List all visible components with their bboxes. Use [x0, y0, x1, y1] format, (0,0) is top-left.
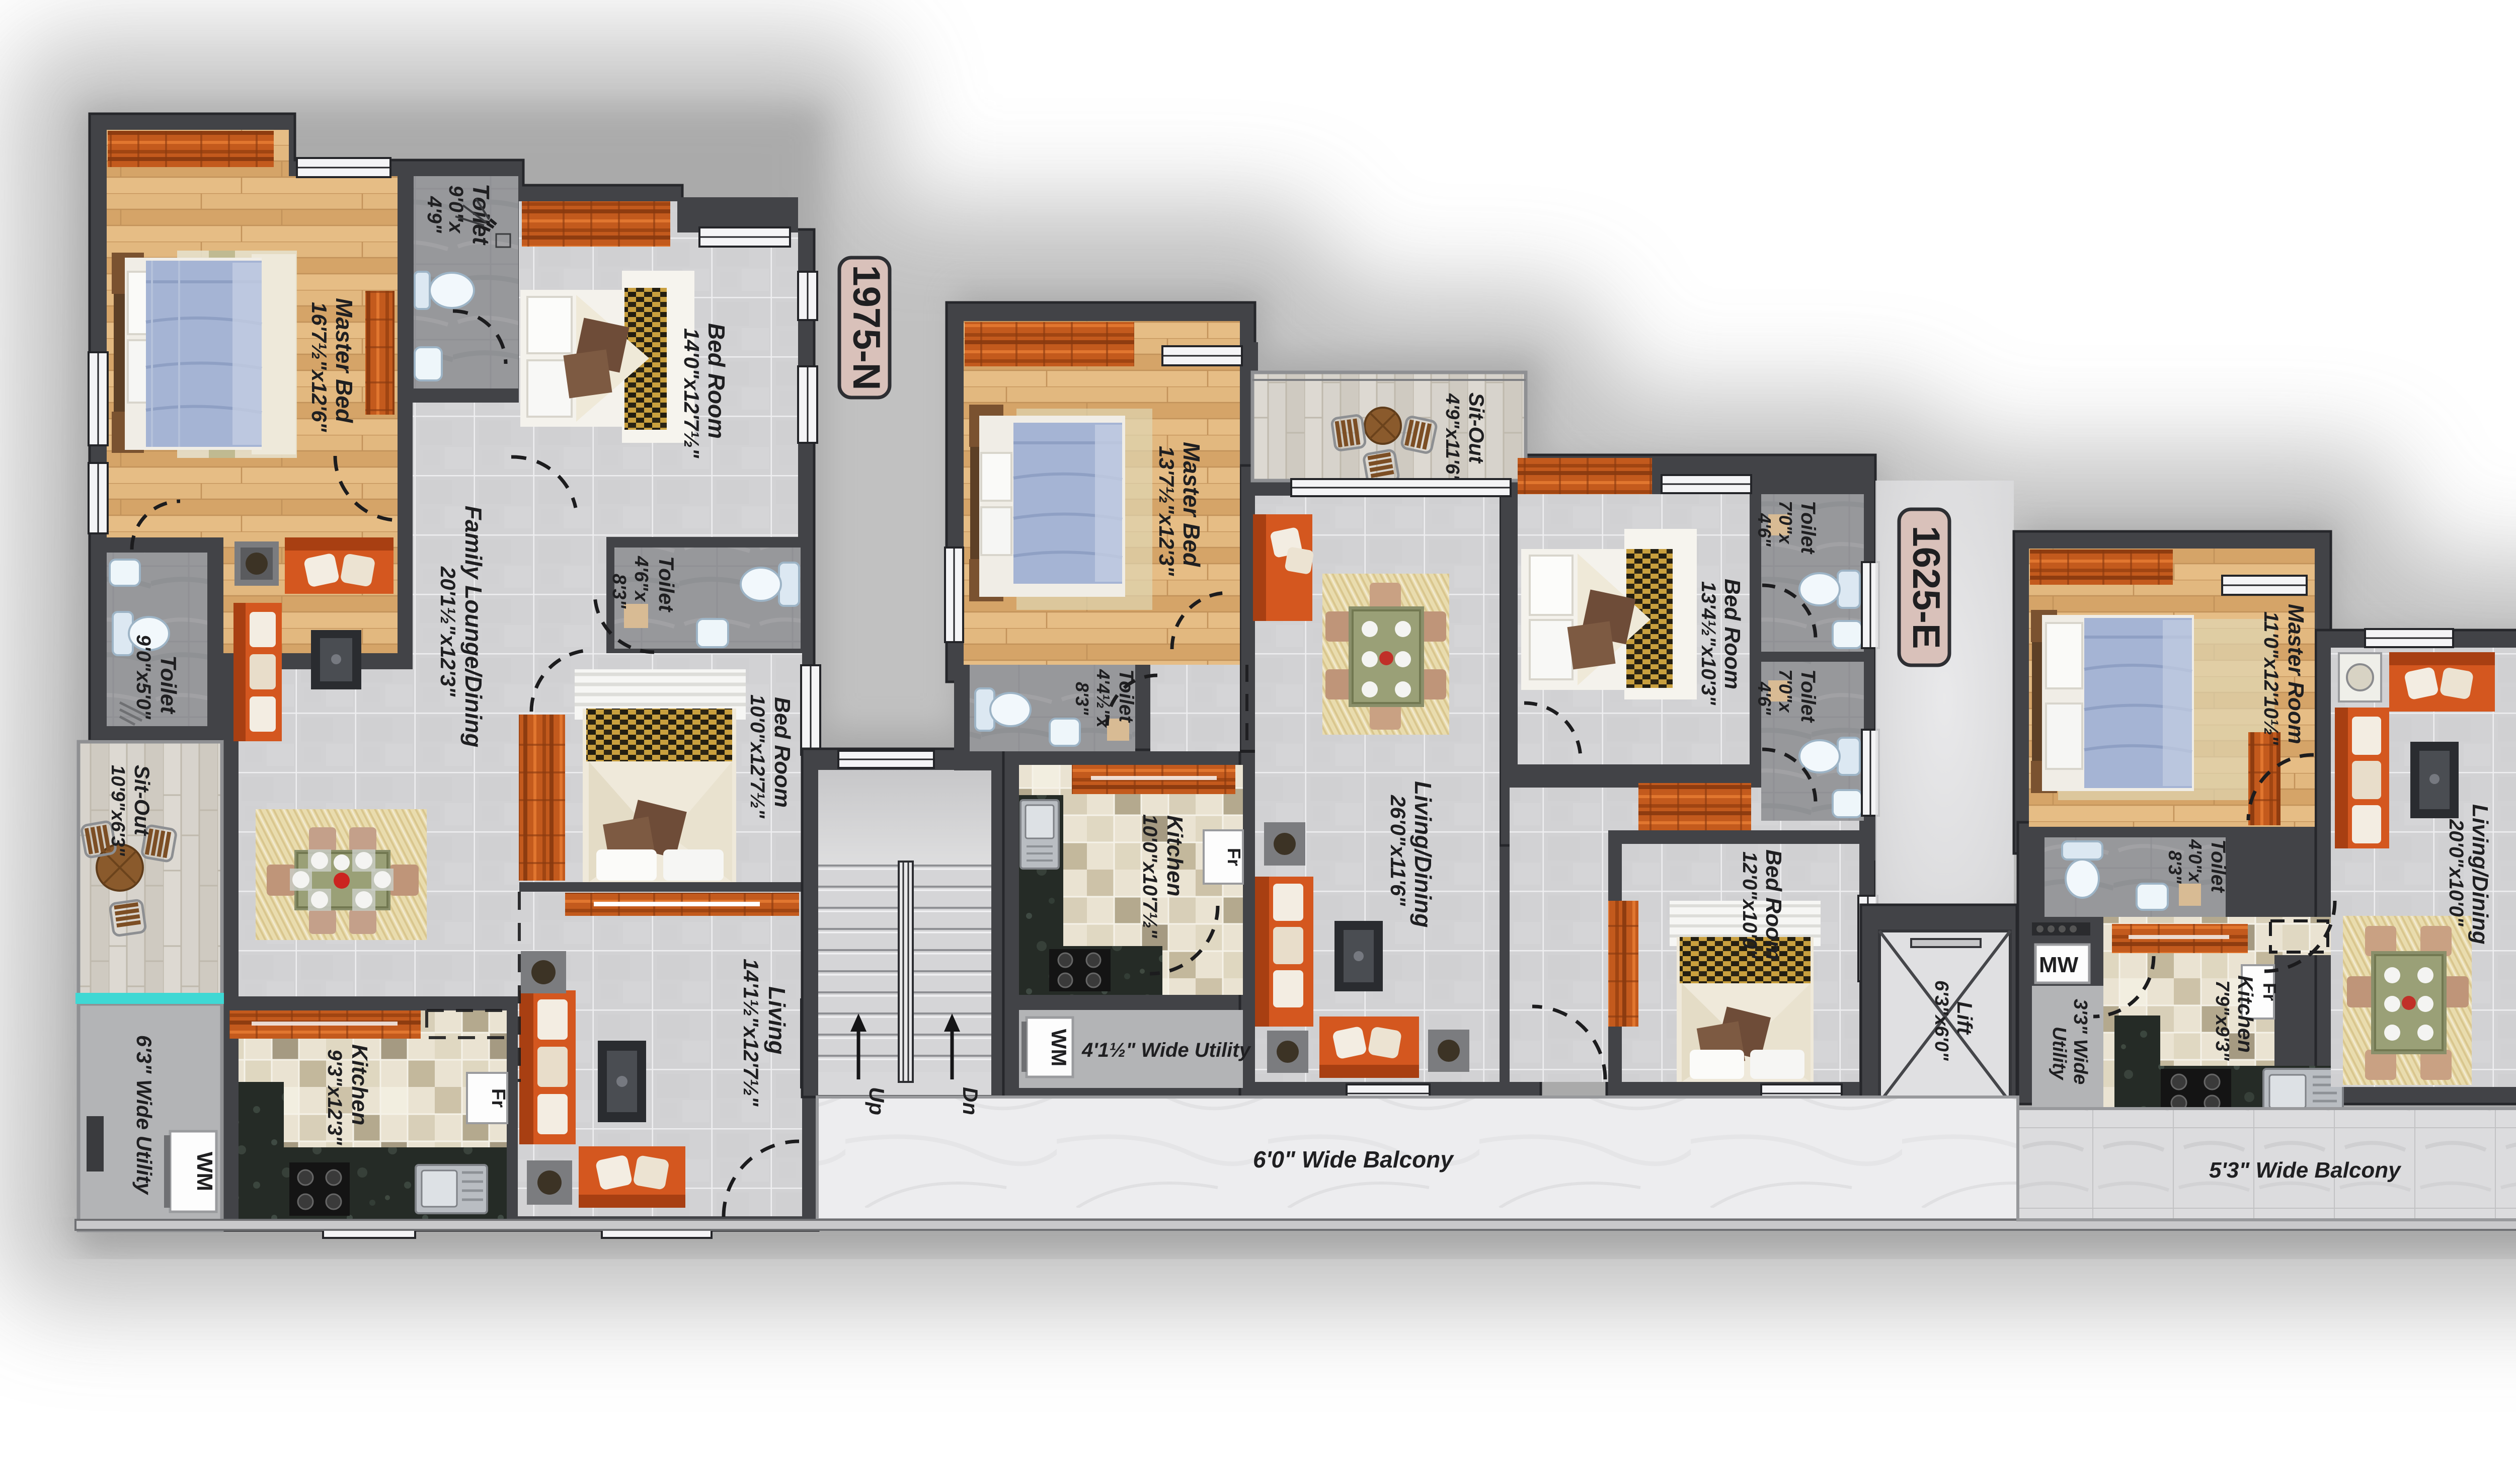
svg-text:Living/Dining: Living/Dining [1410, 781, 1436, 927]
svg-text:4'6"x: 4'6"x [631, 556, 652, 602]
svg-text:4'9": 4'9" [423, 196, 445, 233]
svg-text:16'7½"x12'6": 16'7½"x12'6" [307, 302, 331, 432]
svg-text:3'3" Wide: 3'3" Wide [2070, 999, 2091, 1084]
svg-text:Bed Room: Bed Room [1761, 849, 1786, 960]
svg-text:Sit-Out: Sit-Out [130, 765, 154, 836]
svg-text:Fr: Fr [488, 1088, 509, 1108]
svg-text:Toilet: Toilet [655, 556, 678, 612]
svg-text:Living/Dining: Living/Dining [2468, 804, 2492, 945]
svg-text:8'3": 8'3" [2165, 850, 2185, 884]
svg-text:Kitchen: Kitchen [1162, 815, 1187, 896]
svg-text:6'3" Wide Utility: 6'3" Wide Utility [132, 1035, 156, 1196]
svg-text:Family Lounge/Dining: Family Lounge/Dining [460, 506, 487, 747]
svg-text:Lift: Lift [1953, 1001, 1977, 1035]
svg-text:8'3": 8'3" [608, 574, 630, 609]
svg-text:Living: Living [764, 986, 790, 1054]
svg-text:6'0" Wide Balcony: 6'0" Wide Balcony [1253, 1146, 1454, 1173]
svg-text:Fr: Fr [1224, 848, 1244, 866]
svg-text:Bed Room: Bed Room [1720, 579, 1745, 689]
svg-text:1625-E: 1625-E [1905, 525, 1947, 649]
svg-text:Kitchen: Kitchen [2234, 975, 2257, 1053]
svg-text:7'0"x: 7'0"x [1775, 669, 1796, 714]
svg-text:11'0"x12'10½": 11'0"x12'10½" [2260, 611, 2282, 745]
svg-text:Utility: Utility [2049, 1027, 2070, 1080]
svg-text:10'0"x10'7½": 10'0"x10'7½" [1139, 814, 1161, 939]
svg-text:Master Bed: Master Bed [331, 298, 357, 423]
svg-text:WM: WM [1047, 1029, 1071, 1067]
svg-text:4'6": 4'6" [1754, 681, 1775, 716]
svg-text:WM: WM [192, 1152, 217, 1191]
svg-text:Bed Room: Bed Room [703, 323, 730, 439]
svg-text:Toilet: Toilet [2207, 839, 2229, 893]
svg-text:Toilet: Toilet [468, 184, 494, 246]
svg-text:4'0"x: 4'0"x [2185, 839, 2206, 884]
svg-text:Toilet: Toilet [1797, 669, 1819, 723]
svg-text:6'3"x6'0": 6'3"x6'0" [1931, 980, 1952, 1061]
svg-text:Fr: Fr [2259, 983, 2280, 1001]
svg-text:10'0"x12'7½": 10'0"x12'7½" [746, 694, 768, 819]
svg-text:MW: MW [2039, 953, 2079, 977]
svg-text:9'0"x5'0": 9'0"x5'0" [132, 635, 154, 720]
svg-text:9'3"x12'3": 9'3"x12'3" [324, 1049, 346, 1145]
svg-text:5'3" Wide Balcony: 5'3" Wide Balcony [2209, 1158, 2402, 1183]
svg-text:9'0"x: 9'0"x [445, 185, 467, 234]
svg-text:7'9"x9'3": 7'9"x9'3" [2212, 980, 2233, 1061]
svg-text:Master Room: Master Room [2284, 604, 2308, 744]
svg-text:20'0"x10'0": 20'0"x10'0" [2445, 819, 2467, 927]
svg-text:13'4½"x10'3": 13'4½"x10'3" [1697, 581, 1719, 706]
svg-text:Master Bed: Master Bed [1178, 442, 1205, 567]
svg-text:Toilet: Toilet [1797, 501, 1819, 555]
svg-text:Bed Room: Bed Room [770, 697, 795, 808]
svg-text:26'0"x11'6": 26'0"x11'6" [1386, 795, 1410, 906]
svg-text:12'0"x10'0": 12'0"x10'0" [1739, 851, 1761, 959]
svg-text:8'3": 8'3" [1072, 682, 1092, 716]
svg-text:13'7½"x12'3": 13'7½"x12'3" [1155, 446, 1178, 576]
svg-text:7'0"x: 7'0"x [1775, 501, 1796, 545]
svg-text:14'0"x12'7½": 14'0"x12'7½" [680, 328, 703, 458]
svg-text:4'4½"x: 4'4½"x [1093, 669, 1114, 729]
svg-text:Sit-Out: Sit-Out [1465, 393, 1488, 464]
svg-text:1975-N: 1975-N [845, 265, 888, 390]
svg-text:Dn: Dn [959, 1087, 982, 1115]
svg-text:4'1½" Wide Utility: 4'1½" Wide Utility [1081, 1039, 1251, 1061]
svg-text:Toilet: Toilet [156, 655, 181, 715]
svg-text:10'9"x6'3": 10'9"x6'3" [107, 765, 128, 856]
svg-text:4'6": 4'6" [1754, 513, 1775, 547]
svg-text:Up: Up [865, 1087, 889, 1115]
svg-text:Kitchen: Kitchen [347, 1044, 372, 1125]
svg-text:20'1½"x12'3": 20'1½"x12'3" [436, 566, 460, 697]
svg-text:4'9"x11'6": 4'9"x11'6" [1442, 393, 1463, 484]
svg-text:14'1½"x12'7½": 14'1½"x12'7½" [739, 959, 763, 1107]
